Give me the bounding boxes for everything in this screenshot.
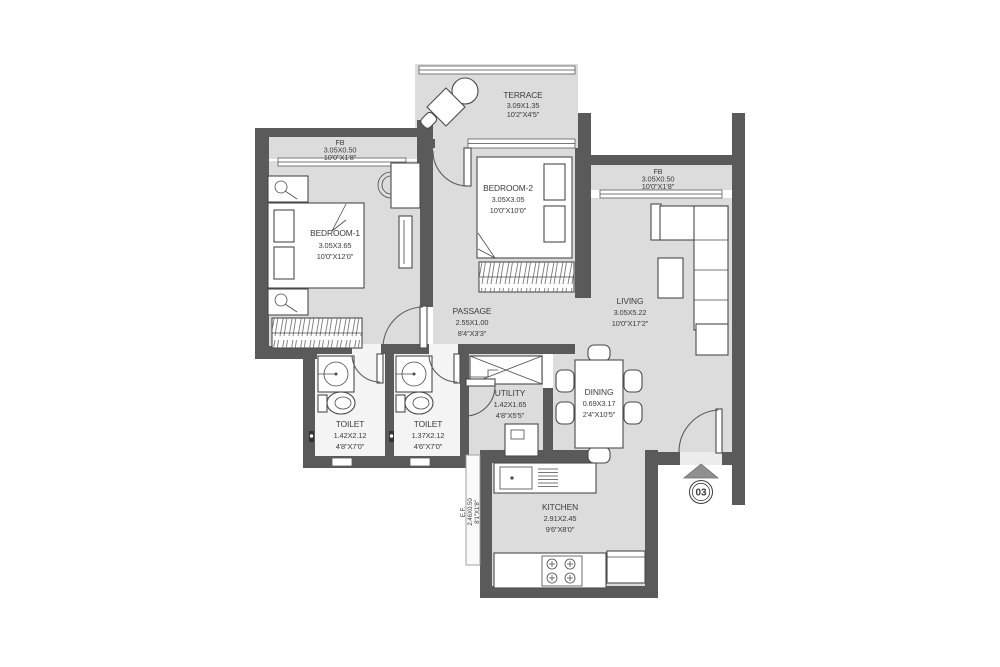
fridge-icon: [607, 551, 645, 583]
room-dim-imperial: 10'2"X4'5": [507, 110, 540, 119]
wall-segment: [658, 452, 680, 465]
room-dim-metric: 1.42X1.65: [494, 400, 527, 409]
pillow-icon: [544, 206, 565, 242]
passage-living-connector: [575, 298, 591, 350]
room-dim-metric: 2.55X1.00: [456, 318, 489, 327]
entry-arrow-icon: [684, 464, 718, 478]
fixture-dot: [310, 434, 313, 437]
terrace-door-opening: [435, 139, 468, 148]
room-dim-imperial: 8'4"X3'3": [458, 329, 487, 338]
room-dim-metric: 3.05X5.22: [614, 308, 647, 317]
room-label: E.F.: [460, 506, 467, 517]
room-label: TOILET: [336, 419, 365, 429]
wall-segment: [428, 139, 435, 148]
room-dim-metric: 0.69X3.17: [583, 399, 616, 408]
fb-right-window-icon: [600, 190, 722, 198]
wall-segment: [460, 354, 469, 456]
wall-segment: [732, 113, 745, 505]
toilet2-door-opening: [429, 344, 458, 354]
wall-segment: [255, 128, 269, 359]
wall-segment: [722, 452, 732, 465]
wall-segment: [480, 463, 492, 598]
hatched-wardrobe-icon: [479, 262, 574, 292]
room-dim-imperial: 10'0"X12'0": [317, 252, 354, 261]
kitchen-counter-stove-icon: [494, 553, 606, 588]
room-label: UTILITY: [495, 388, 526, 398]
wall-segment: [303, 456, 483, 468]
washing-machine-icon: [505, 424, 538, 456]
pillow-icon: [544, 164, 565, 200]
room-dim-imperial: 4'6"X7'0": [414, 442, 443, 451]
toilet1-vent: [332, 458, 352, 466]
pillow-icon: [274, 247, 294, 279]
wc-icon: [396, 392, 433, 414]
wall-segment: [420, 148, 433, 307]
room-dim-imperial: 10'0"X1'8": [642, 182, 675, 191]
room-dim-metric: 1.37X2.12: [412, 431, 445, 440]
room-dim-imperial: 4'8"X7'0": [336, 442, 365, 451]
room-dim-imperial: 8'1"X1'8": [474, 500, 481, 524]
room-bedroom2: BEDROOM-2 3.05X3.05 10'0"X10'0": [477, 157, 574, 292]
entry-threshold: [680, 452, 722, 465]
wall-segment: [575, 148, 591, 298]
kitchen-counter-sink-icon: [494, 463, 596, 493]
nightstand-icon: [268, 289, 308, 315]
room-label: TERRACE: [503, 90, 543, 100]
room-dim-metric: 2.91X2.45: [544, 514, 577, 523]
room-dim-metric: 3.09X1.35: [507, 101, 540, 110]
wall-segment: [303, 346, 315, 468]
room-passage: PASSAGE 2.55X1.00 8'4"X3'3": [453, 306, 492, 338]
nightstand-icon: [268, 176, 308, 202]
room-dim-imperial: 10'0"X10'0": [490, 206, 527, 215]
side-table-icon: [696, 324, 728, 355]
room-label: PASSAGE: [453, 306, 492, 316]
room-dim-metric: 1.42X2.12: [334, 431, 367, 440]
floor-plan-canvas: TERRACE 3.09X1.35 10'2"X4'5" FB 3.05X0.5…: [0, 0, 1000, 667]
room-dim-imperial: 10'0"X17'2": [612, 319, 649, 328]
wardrobe-icon: [399, 216, 412, 268]
wall-segment: [480, 450, 604, 463]
coffee-table-icon: [658, 258, 683, 298]
room-dim-metric: 3.05X3.05: [492, 195, 525, 204]
unit-number-badge: 03: [690, 481, 713, 504]
room-dim-metric: 2.46X0.50: [467, 498, 474, 526]
entry-marker: 03: [684, 464, 718, 504]
fixture-dot: [390, 434, 393, 437]
wall-segment: [591, 155, 745, 165]
room-dim-imperial: 10'0"X1'8": [324, 153, 357, 162]
ef-shaft: E.F. 2.46X0.50 8'1"X1'8": [460, 455, 481, 565]
toilet2-vent: [410, 458, 430, 466]
room-label: KITCHEN: [542, 502, 578, 512]
unit-number: 03: [696, 488, 707, 499]
floor-plan-drawing: TERRACE 3.09X1.35 10'2"X4'5" FB 3.05X0.5…: [0, 0, 1000, 667]
room-label: LIVING: [617, 296, 644, 306]
washbasin-icon: [396, 356, 432, 392]
room-label: BEDROOM-2: [483, 183, 533, 193]
terrace-window-icon: [468, 139, 575, 148]
room-dim-imperial: 9'6"X8'0": [546, 525, 575, 534]
room-dim-imperial: 2'4"X10'5": [583, 410, 616, 419]
wall-segment: [645, 450, 658, 598]
pillow-icon: [274, 210, 294, 242]
wc-icon: [318, 392, 355, 414]
room-label: DINING: [585, 387, 614, 397]
washbasin-icon: [318, 356, 354, 392]
room-dim-metric: 3.05X3.65: [319, 241, 352, 250]
terrace-railing-icon: [419, 66, 575, 74]
room-dim-imperial: 4'8"X5'5": [496, 411, 525, 420]
wall-segment: [255, 128, 433, 137]
room-label: TOILET: [414, 419, 443, 429]
room-label: BEDROOM-1: [310, 228, 360, 238]
hatched-wardrobe-icon: [272, 318, 362, 348]
wall-segment: [458, 344, 575, 354]
